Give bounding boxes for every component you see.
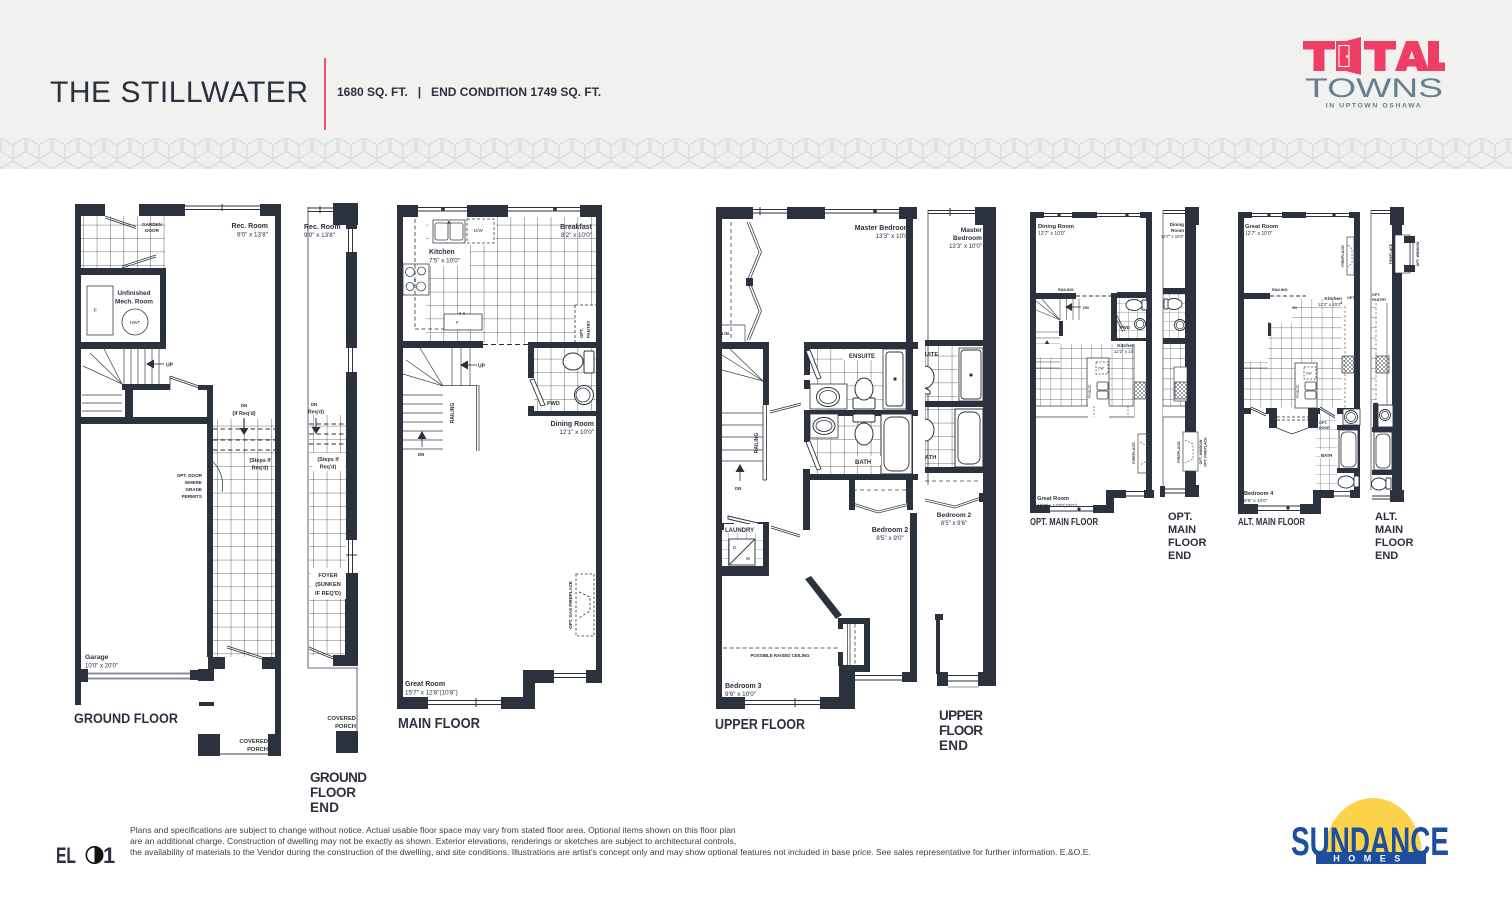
svg-text:LIN.: LIN.: [722, 331, 730, 336]
svg-text:PERMITS: PERMITS: [182, 494, 202, 499]
svg-text:IF REQ'D): IF REQ'D): [315, 591, 341, 597]
svg-text:(Steps If: (Steps If: [317, 457, 338, 463]
svg-text:END: END: [1168, 550, 1191, 562]
svg-text:DOOR: DOOR: [145, 228, 159, 233]
svg-text:OPT.: OPT.: [1372, 293, 1380, 297]
svg-text:THE STILLWATER: THE STILLWATER: [50, 76, 308, 109]
svg-text:13'3" x 10'0": 13'3" x 10'0": [949, 244, 982, 250]
svg-text:UPPER FLOOR: UPPER FLOOR: [715, 716, 805, 733]
svg-text:UP: UP: [478, 364, 486, 370]
svg-text:LAUNDRY: LAUNDRY: [725, 528, 754, 534]
svg-text:BATH: BATH: [855, 460, 871, 466]
svg-text:BATH: BATH: [1321, 453, 1332, 458]
svg-text:FIREPLACE: FIREPLACE: [1389, 243, 1393, 264]
svg-text:MAIN FLOOR: MAIN FLOOR: [398, 715, 480, 732]
svg-text:9'6" x 10'0": 9'6" x 10'0": [1244, 498, 1268, 504]
svg-text:RAILING: RAILING: [754, 433, 760, 454]
svg-text:Great Room: Great Room: [1245, 224, 1278, 230]
svg-text:PORCH: PORCH: [247, 747, 268, 753]
svg-text:DN: DN: [735, 486, 741, 491]
svg-text:FLOOR: FLOOR: [939, 723, 983, 738]
svg-text:8'5" x 9'0": 8'5" x 9'0": [876, 535, 904, 542]
svg-text:Mech. Room: Mech. Room: [115, 299, 153, 306]
svg-text:15'7" x 12'8"(10'8"): 15'7" x 12'8"(10'8"): [405, 690, 458, 697]
svg-text:FIREPLACE: FIREPLACE: [1132, 442, 1136, 464]
svg-text:(If Req'd): (If Req'd): [232, 411, 255, 417]
svg-text:OPT.: OPT.: [579, 328, 584, 338]
svg-text:ALT.: ALT.: [1375, 511, 1397, 523]
svg-text:Bedroom: Bedroom: [953, 235, 982, 242]
svg-text:FOYER: FOYER: [318, 573, 337, 579]
svg-text:COVERED: COVERED: [327, 716, 356, 722]
svg-text:Great Room: Great Room: [405, 681, 445, 688]
svg-text:FLOOR: FLOOR: [310, 785, 356, 800]
svg-text:COVERED: COVERED: [239, 739, 268, 745]
svg-text:10'0" x 20'0": 10'0" x 20'0": [85, 664, 118, 670]
svg-text:OPT. GAS FIREPLACE: OPT. GAS FIREPLACE: [568, 581, 573, 629]
svg-text:Master: Master: [961, 227, 983, 234]
svg-text:PORCH: PORCH: [335, 724, 356, 730]
svg-text:Room: Room: [1171, 228, 1184, 233]
svg-text:D/W: D/W: [474, 228, 484, 233]
svg-text:RAILING: RAILING: [1272, 288, 1288, 292]
svg-text:GROUND: GROUND: [310, 770, 367, 785]
svg-text:PWD: PWD: [547, 401, 560, 407]
svg-text:OPT. MAIN FLOOR: OPT. MAIN FLOOR: [1030, 516, 1098, 528]
svg-text:HOMES: HOMES: [1333, 854, 1409, 864]
svg-text:ATH: ATH: [925, 455, 936, 461]
svg-text:12'7" x 10'0": 12'7" x 10'0": [1038, 231, 1066, 237]
svg-text:IN UPTOWN OSHAWA: IN UPTOWN OSHAWA: [1326, 103, 1422, 110]
svg-text:Req'd): Req'd): [252, 466, 269, 472]
svg-text:HWT: HWT: [130, 320, 141, 325]
svg-text:Kitchen: Kitchen: [429, 249, 455, 256]
svg-text:OPT.: OPT.: [1168, 511, 1192, 523]
svg-text:TOWNS: TOWNS: [1305, 73, 1443, 103]
svg-text:Master Bedroom: Master Bedroom: [855, 225, 910, 232]
svg-text:GROUND FLOOR: GROUND FLOOR: [74, 711, 178, 726]
svg-text:9'0" x 13'8": 9'0" x 13'8": [304, 232, 335, 239]
svg-text:13'3" x 10'0": 13'3" x 10'0": [875, 233, 910, 240]
svg-text:Bedroom 4: Bedroom 4: [1244, 491, 1274, 497]
svg-text:F: F: [456, 320, 459, 326]
svg-text:Rec. Room: Rec. Room: [304, 224, 341, 231]
svg-text:Req'd): Req'd): [320, 465, 337, 471]
svg-text:POSSIBLE RAISED CEILING: POSSIBLE RAISED CEILING: [750, 653, 810, 658]
svg-text:END: END: [939, 738, 968, 753]
svg-text:GARDEN: GARDEN: [142, 222, 163, 227]
svg-text:UP: UP: [166, 363, 174, 369]
svg-text:MAIN: MAIN: [1168, 524, 1196, 536]
svg-text:GRADE: GRADE: [185, 487, 202, 492]
svg-text:(Steps If: (Steps If: [249, 458, 270, 464]
svg-text:Unfinished: Unfinished: [117, 290, 150, 297]
svg-text:9'0" x 13'8": 9'0" x 13'8": [237, 232, 268, 239]
svg-text:MAIN: MAIN: [1375, 524, 1403, 536]
svg-text:Garage: Garage: [85, 654, 109, 661]
svg-text:FRIDGE: FRIDGE: [1296, 384, 1300, 398]
svg-text:ALT. MAIN FLOOR: ALT. MAIN FLOOR: [1238, 516, 1305, 528]
svg-text:ENSUITE: ENSUITE: [849, 354, 875, 360]
svg-text:(SUNKEN: (SUNKEN: [315, 582, 340, 588]
svg-text:UPPER: UPPER: [939, 708, 983, 723]
svg-text:7'5" x 10'0": 7'5" x 10'0": [429, 258, 460, 265]
svg-text:FIREPLACE: FIREPLACE: [1341, 245, 1345, 267]
svg-text:12'7" x 10'0": 12'7" x 10'0": [1245, 231, 1273, 237]
svg-text:Breakfast: Breakfast: [560, 224, 593, 231]
svg-text:Bedroom 2: Bedroom 2: [937, 512, 972, 519]
svg-text:OPT. WINDOW: OPT. WINDOW: [1199, 439, 1203, 464]
svg-text:PANTRY: PANTRY: [1372, 298, 1387, 302]
svg-text:12'1" x 10'0": 12'1" x 10'0": [559, 429, 594, 436]
svg-text:FRIDGE: FRIDGE: [1088, 384, 1092, 398]
svg-text:RAILING: RAILING: [1058, 288, 1074, 292]
svg-text:9'6" x 10'0": 9'6" x 10'0": [725, 691, 756, 698]
svg-text:Bedroom 3: Bedroom 3: [725, 683, 762, 690]
svg-text:Great Room: Great Room: [1037, 496, 1069, 502]
svg-text:OPT. WINDOW: OPT. WINDOW: [1416, 241, 1420, 266]
svg-text:Bedroom 2: Bedroom 2: [872, 527, 909, 534]
svg-text:F: F: [94, 308, 97, 314]
svg-text:DW: DW: [1306, 372, 1313, 376]
svg-text:Dining Room: Dining Room: [1038, 224, 1074, 230]
svg-text:8'2" x 10'0": 8'2" x 10'0": [561, 232, 592, 239]
svg-text:EL: EL: [56, 844, 76, 868]
svg-text:12'7" x 10'0": 12'7" x 10'0": [1161, 234, 1184, 239]
svg-text:8'5" x 9'6": 8'5" x 9'6": [941, 521, 967, 527]
svg-text:DW: DW: [1098, 367, 1105, 371]
svg-text:1: 1: [103, 844, 115, 868]
svg-text:END: END: [1375, 550, 1398, 562]
svg-text:Dining Room: Dining Room: [550, 421, 594, 428]
svg-text:RAILING: RAILING: [450, 403, 456, 424]
svg-text:OPT. DOOR: OPT. DOOR: [177, 473, 203, 478]
svg-text:Rec. Room: Rec. Room: [231, 223, 268, 230]
svg-text:FLOOR: FLOOR: [1168, 537, 1207, 549]
svg-text:WHERE: WHERE: [185, 480, 202, 485]
svg-text:END: END: [310, 800, 339, 815]
svg-text:PANTRY: PANTRY: [586, 320, 591, 338]
svg-text:1680 SQ. FT. | END CONDITI: 1680 SQ. FT. | END CONDITION 1749 SQ. FT…: [337, 85, 601, 99]
svg-text:DN: DN: [418, 452, 424, 457]
svg-text:DN: DN: [1083, 305, 1089, 310]
svg-text:Req'd): Req'd): [308, 410, 324, 416]
svg-text:DN: DN: [311, 402, 317, 407]
svg-text:FLOOR: FLOOR: [1375, 537, 1414, 549]
svg-text:PWD: PWD: [1120, 325, 1130, 330]
svg-text:FIREPLACE: FIREPLACE: [1177, 441, 1181, 463]
svg-text:DN: DN: [241, 403, 247, 408]
svg-text:Dining: Dining: [1170, 222, 1184, 227]
svg-text:OPT. FIREPLACE: OPT. FIREPLACE: [1204, 437, 1208, 467]
